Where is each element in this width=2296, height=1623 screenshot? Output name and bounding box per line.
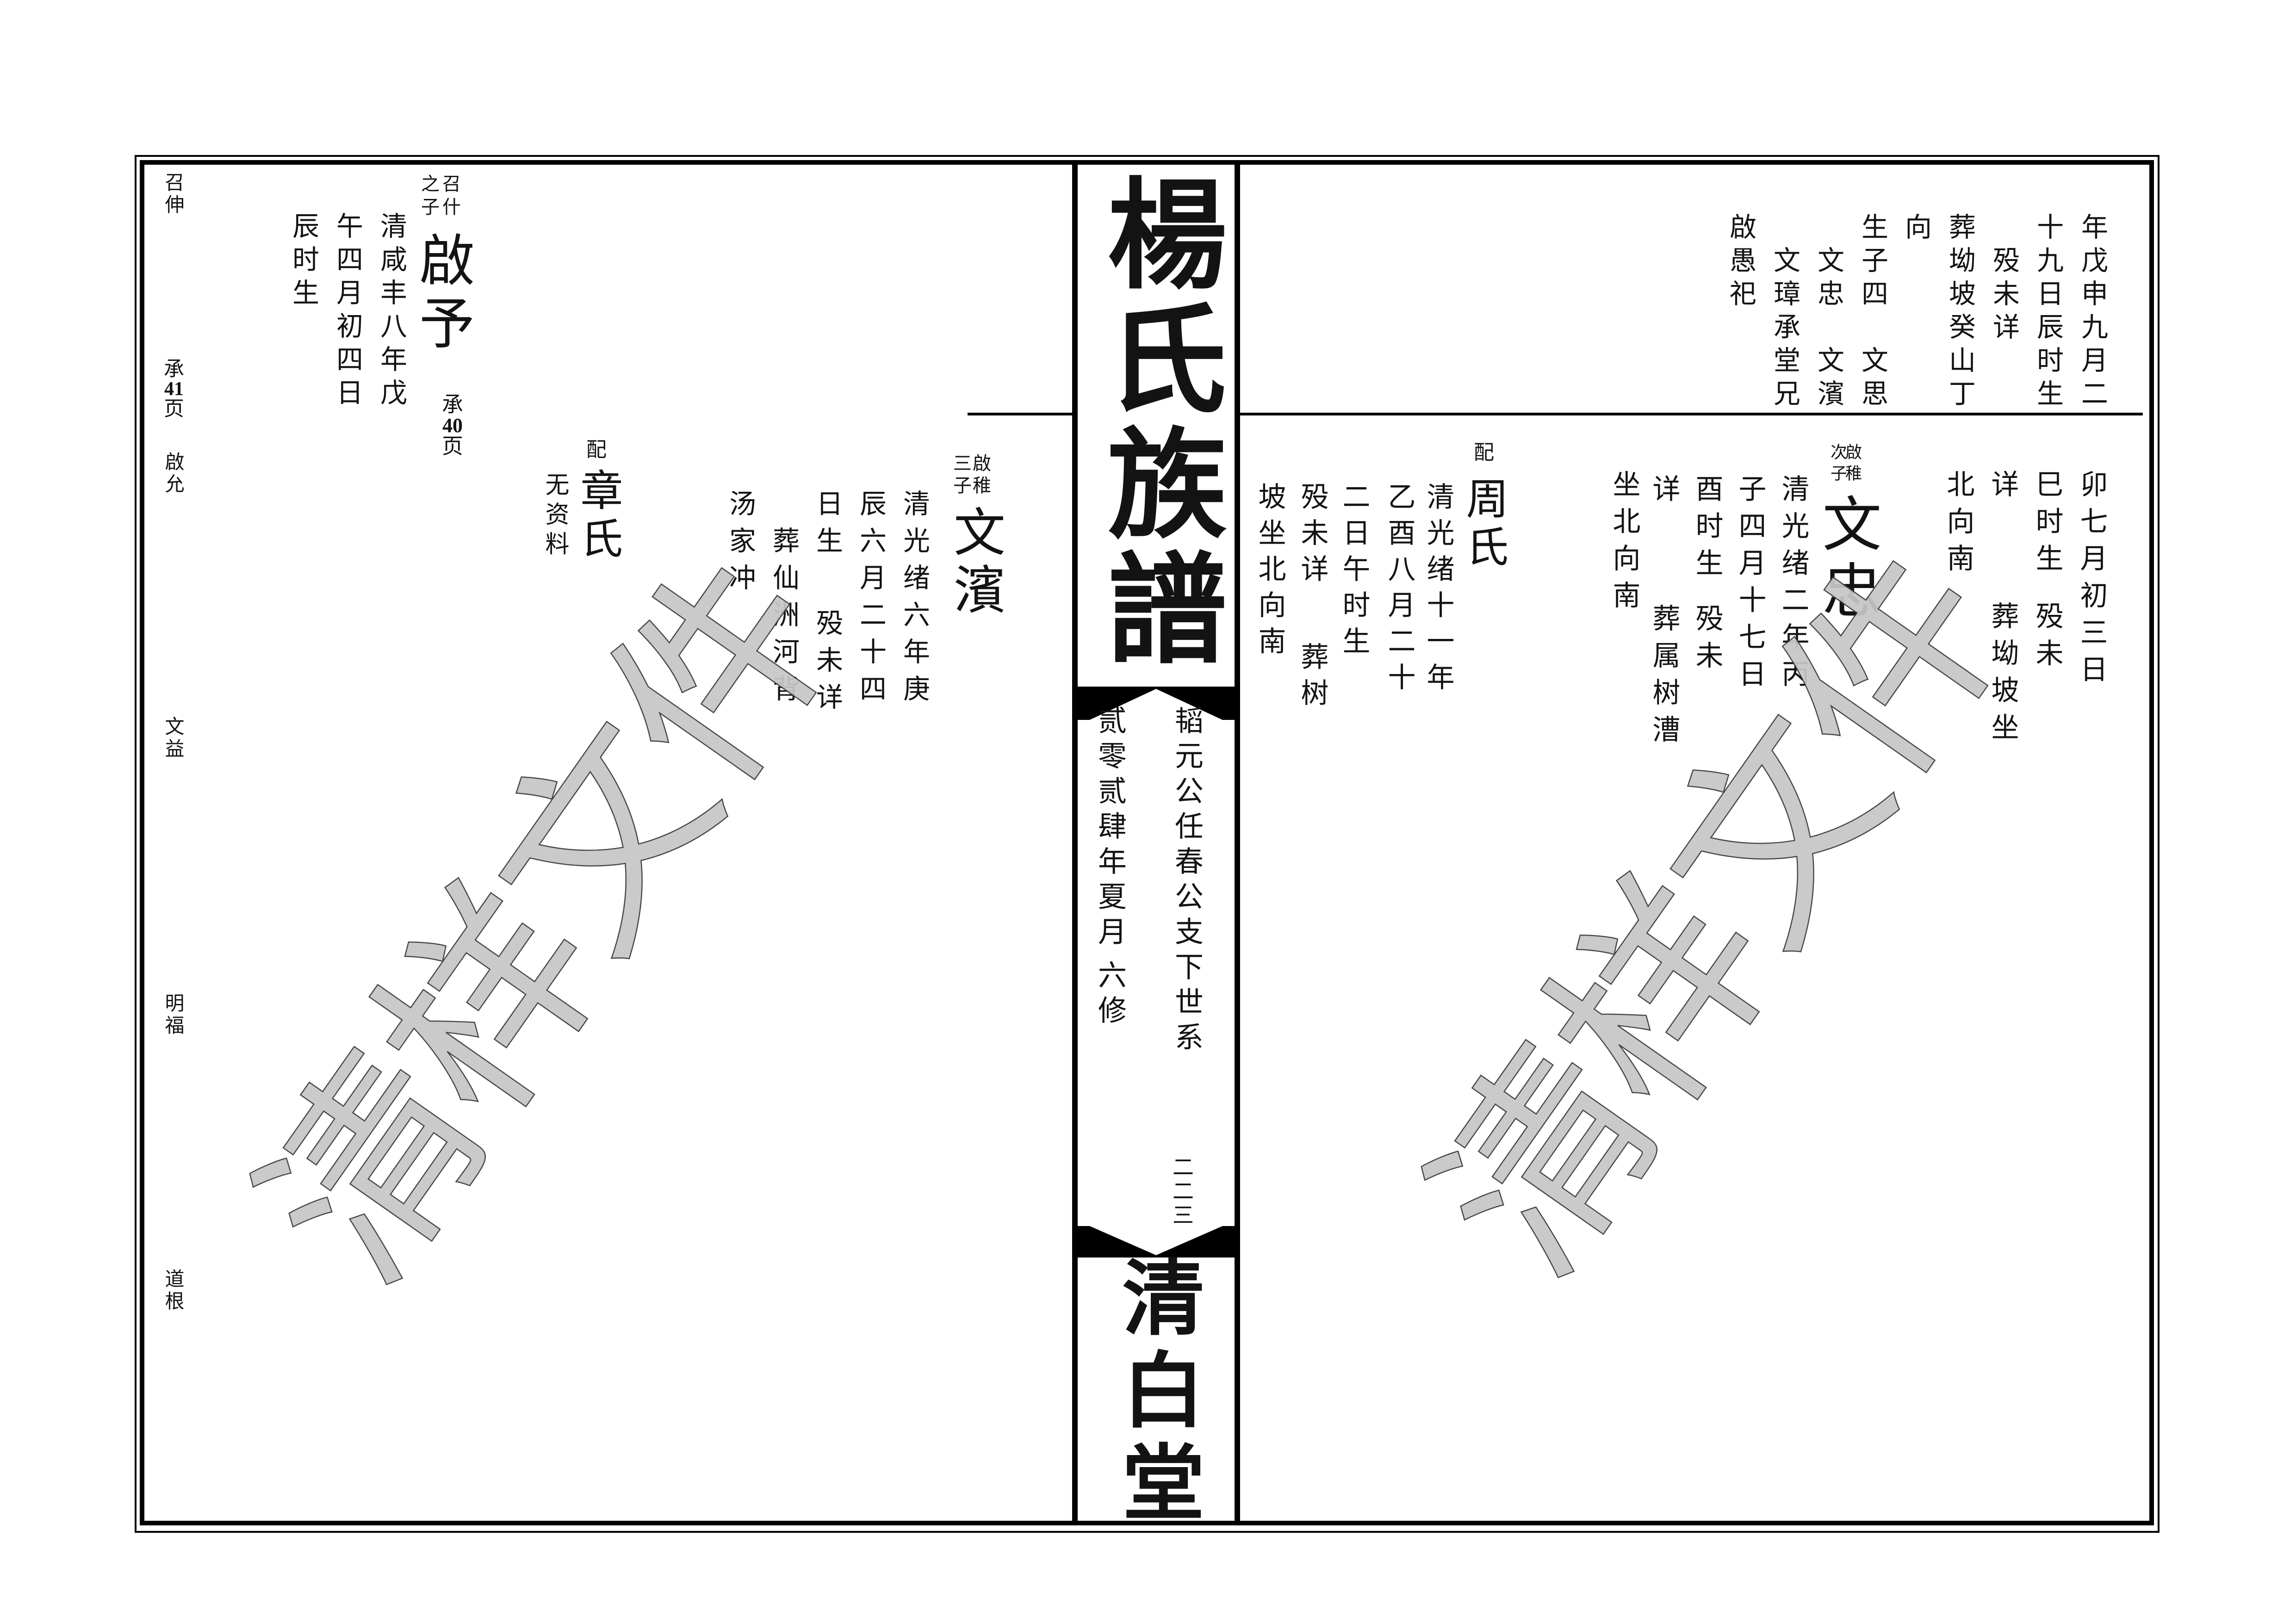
rp1-qiyu-sacrifice-note: 啟愚祀: [1727, 213, 1754, 313]
qiyu-birth-col-3: 辰时生: [290, 212, 316, 312]
hall-name: 清白堂: [1115, 1255, 1197, 1532]
margin-label-cont-41: 承 41 页: [160, 359, 188, 419]
zhoushi-col-2: 乙酉八月二十: [1385, 482, 1413, 699]
rp1-col-5: 向: [1902, 213, 1929, 246]
qiyu-cont-page-char: 页: [442, 436, 463, 457]
qiyu-continued-note: 承 40 页: [437, 394, 468, 457]
zhoushi-col-4-burial: 葬树: [1298, 642, 1326, 714]
page-number: 二二三: [1171, 1156, 1192, 1228]
rp1-son-wenzhong: 文忠: [1815, 246, 1842, 313]
zhangshi-no-data: 无资料: [542, 472, 566, 561]
qiyu-cont-number: 40: [442, 415, 463, 436]
wenzhong-col-4-detail: 详: [1650, 474, 1678, 511]
wenzhong-col-3-death: 殁未: [1693, 604, 1721, 678]
wenzhong-col-4-burial: 葬属树漕: [1650, 604, 1678, 752]
margin-label-wenyi: 文益: [163, 716, 182, 761]
margin-cont-page-char: 页: [164, 399, 184, 419]
zhoushi-col-3: 二日午时生: [1340, 482, 1368, 663]
qiyu-name: 啟予: [414, 231, 469, 357]
rp1-son-wensi: 文思: [1859, 346, 1886, 413]
zhangshi-name: 章氏: [577, 468, 619, 564]
zhoushi-name: 周氏: [1462, 477, 1505, 573]
spine-left-rule: [1072, 160, 1078, 1525]
rp1-col-3-death: 殁未详: [1990, 246, 2017, 346]
wenzhong-relation-left: 次子: [1829, 443, 1846, 486]
rp2-col-3-detail: 详: [1989, 470, 2017, 507]
wenbin-name: 文濱: [949, 505, 1000, 620]
spine-lineage-line: 韬元公任春公支下世系: [1172, 706, 1200, 1057]
rp1-son-wenbin: 文濱: [1815, 346, 1842, 413]
zhoushi-spouse-label: 配: [1471, 441, 1492, 462]
margin-label-daogen: 道根: [163, 1269, 182, 1313]
rp1-col-1: 年戊申九月二: [2079, 213, 2105, 413]
rp1-col-4-burial: 葬坳坡癸山丁: [1946, 213, 1973, 413]
wenbin-col-1: 清光绪六年庚: [900, 489, 927, 712]
spine-edition-no: 六修: [1095, 960, 1123, 1030]
zhangshi-spouse-label: 配: [584, 439, 604, 459]
margin-cont-number: 41: [164, 379, 184, 399]
margin-label-mingfu: 明福: [163, 993, 182, 1037]
fishtail-lower: [1078, 1226, 1235, 1258]
spine-right-rule: [1235, 160, 1240, 1525]
fishtail-lower-notch: [1090, 1226, 1222, 1255]
qiyu-birth-col-1: 清咸丰八年戊: [378, 212, 404, 412]
divider-right-page: [1240, 413, 2143, 415]
wenbin-relation-left: 三子: [951, 453, 970, 498]
wenzhong-col-5-orientation: 坐北向南: [1610, 470, 1638, 618]
qiyu-cont-char: 承: [442, 394, 463, 415]
zhoushi-col-1: 清光绪十一年: [1424, 482, 1452, 699]
rp1-son-wenzhang-note: 文璋承堂兄: [1771, 246, 1798, 413]
qiyu-relation-right: 召什: [441, 174, 459, 220]
wenbin-col-3-birth: 日生: [813, 489, 840, 564]
rp1-col-2: 十九日辰时生: [2034, 213, 2061, 413]
qiyu-relation-left: 之子: [419, 174, 438, 220]
spine-title: 楊氏族譜: [1096, 172, 1216, 672]
qiyu-birth-col-2: 午四月初四日: [334, 212, 360, 412]
genealogy-page: 楊氏族譜 韬元公任春公支下世系 贰零贰肆年夏月 六修 二二三 清白堂 召伸 承 …: [0, 0, 2296, 1623]
wenbin-relation-right: 啟稚: [971, 453, 989, 498]
rp2-col-1: 卯七月初三日: [2078, 470, 2105, 692]
margin-label-qiyun: 啟允: [163, 452, 182, 496]
rp2-col-4-orientation: 北向南: [1944, 470, 1972, 581]
margin-label-zhaoshen: 召伸: [163, 172, 182, 217]
zhoushi-col-5-orientation: 坡坐北向南: [1256, 482, 1284, 663]
divider-left-page: [968, 413, 1072, 415]
rp2-col-2-birth: 巳时生: [2033, 470, 2061, 581]
wenzhong-col-3-birth: 酉时生: [1693, 474, 1721, 585]
zhoushi-col-4-death: 殁未详: [1298, 482, 1326, 590]
margin-cont-char: 承: [164, 359, 184, 379]
rp1-sons-label: 生子四: [1859, 213, 1886, 313]
spine-edition-date: 贰零贰肆年夏月: [1095, 706, 1123, 952]
